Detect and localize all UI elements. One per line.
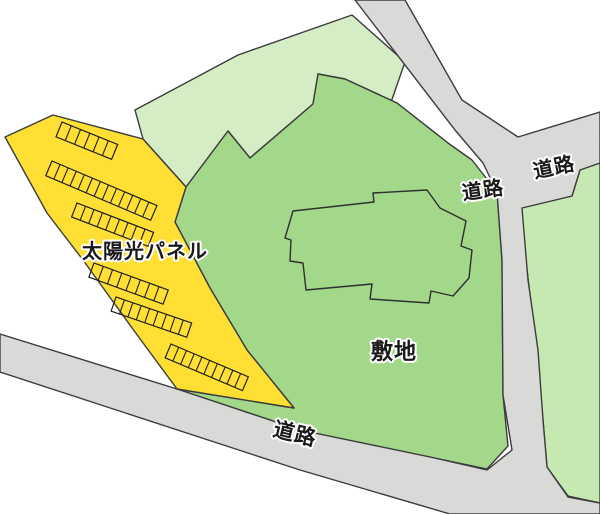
map-canvas: 太陽光パネル敷地道路道路道路: [0, 0, 600, 514]
site-plan-map: 太陽光パネル敷地道路道路道路: [0, 0, 600, 514]
site-label: 敷地: [371, 339, 417, 364]
solar-panel-label: 太陽光パネル: [82, 240, 208, 263]
